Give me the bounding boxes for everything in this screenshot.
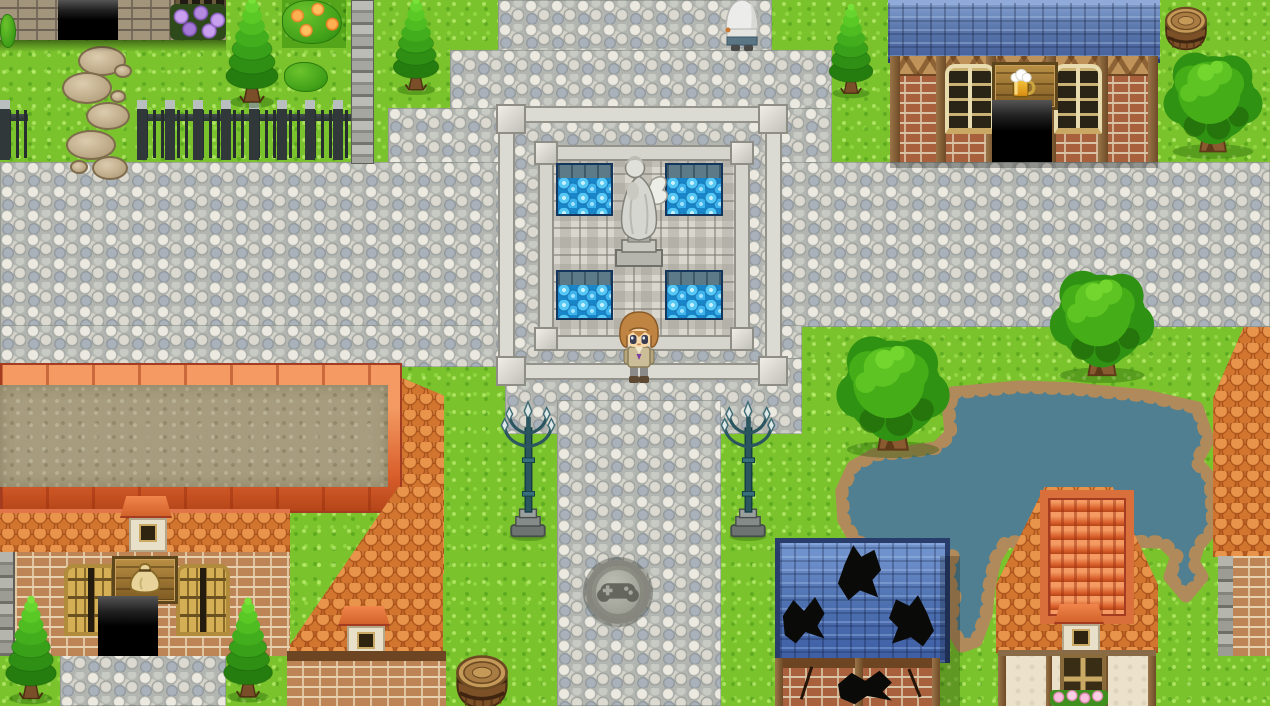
tavern-building bbox=[888, 0, 1160, 168]
conifer-tree bbox=[220, 0, 284, 108]
purple-flower-box bbox=[170, 4, 226, 40]
north-house-door[interactable] bbox=[58, 0, 118, 40]
round-tree bbox=[830, 328, 956, 458]
shop-flat-roof bbox=[0, 385, 388, 487]
iron-fence bbox=[137, 100, 353, 160]
tavern-window bbox=[945, 64, 995, 134]
tavern-door[interactable] bbox=[992, 100, 1052, 162]
flower-box bbox=[1050, 690, 1108, 706]
round-tree bbox=[1044, 258, 1160, 388]
angel-statue bbox=[602, 146, 676, 276]
conifer-tree bbox=[0, 594, 62, 706]
ruined-house bbox=[775, 538, 940, 706]
conifer-tree bbox=[218, 594, 278, 706]
shop-wing-dormer bbox=[338, 606, 390, 656]
cottage-dormer bbox=[1054, 604, 1104, 652]
round-tree bbox=[1158, 42, 1268, 162]
stepping-stones bbox=[58, 44, 138, 180]
game-viewport bbox=[0, 0, 1270, 706]
east-house-wall bbox=[1233, 556, 1270, 656]
shop-dormer bbox=[120, 496, 172, 552]
tavern-window bbox=[1054, 64, 1102, 134]
street-lamp bbox=[720, 394, 776, 546]
gamepad-icon bbox=[596, 578, 640, 606]
south-road-pavement bbox=[557, 400, 721, 706]
money-bag-icon bbox=[123, 562, 167, 598]
stone-pillar bbox=[351, 0, 374, 164]
plaza-pavement bbox=[450, 50, 832, 112]
street-lamp bbox=[500, 394, 556, 546]
wall-shadow bbox=[0, 40, 226, 52]
vine-bush bbox=[0, 14, 16, 48]
orange-flower-bush bbox=[282, 0, 342, 44]
conifer-tree bbox=[388, 0, 444, 98]
shop-door[interactable] bbox=[98, 596, 158, 656]
villager-npc[interactable] bbox=[718, 0, 766, 52]
wooden-barrel[interactable] bbox=[450, 648, 514, 706]
fountain-pool bbox=[665, 270, 723, 320]
fountain-pool bbox=[556, 270, 613, 320]
tavern-roof bbox=[888, 0, 1160, 63]
building-shadow bbox=[940, 556, 960, 706]
player-character[interactable] bbox=[615, 309, 663, 389]
green-bush bbox=[284, 62, 328, 92]
beer-mug-icon bbox=[1009, 68, 1039, 102]
manhole-gamepad-emblem[interactable] bbox=[586, 560, 650, 624]
conifer-tree bbox=[824, 0, 878, 106]
cottage-building bbox=[996, 487, 1158, 706]
iron-fence bbox=[0, 100, 28, 160]
